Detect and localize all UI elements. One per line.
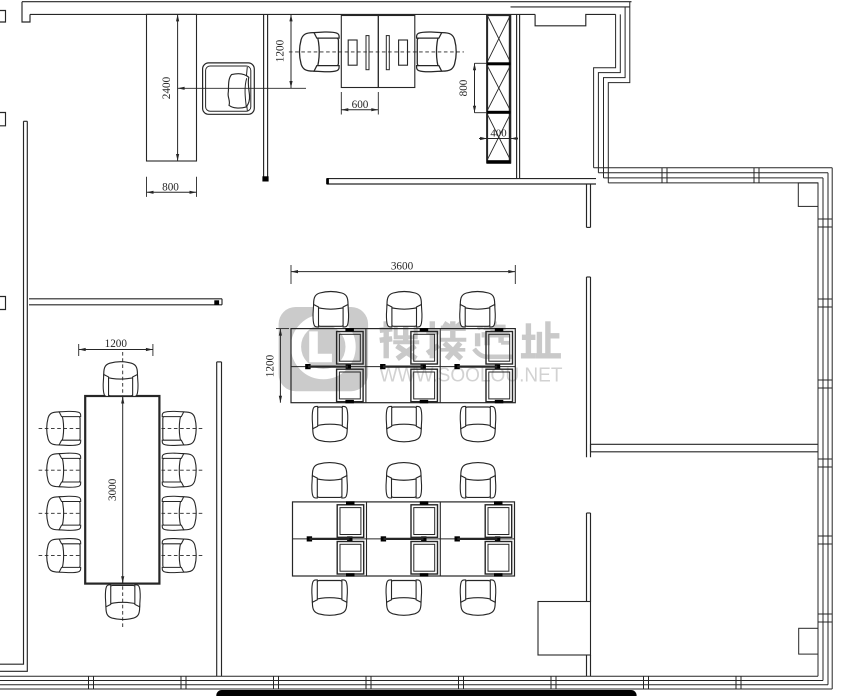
svg-text:3600: 3600 bbox=[391, 261, 414, 273]
svg-text:800: 800 bbox=[162, 182, 179, 194]
svg-text:3000: 3000 bbox=[107, 478, 119, 501]
svg-text:600: 600 bbox=[352, 99, 369, 111]
svg-text:2400: 2400 bbox=[161, 76, 173, 99]
svg-text:1200: 1200 bbox=[265, 354, 277, 377]
svg-text:1200: 1200 bbox=[275, 39, 287, 62]
svg-text:800: 800 bbox=[458, 79, 470, 96]
svg-text:400: 400 bbox=[490, 127, 506, 139]
svg-text:1200: 1200 bbox=[105, 338, 128, 350]
